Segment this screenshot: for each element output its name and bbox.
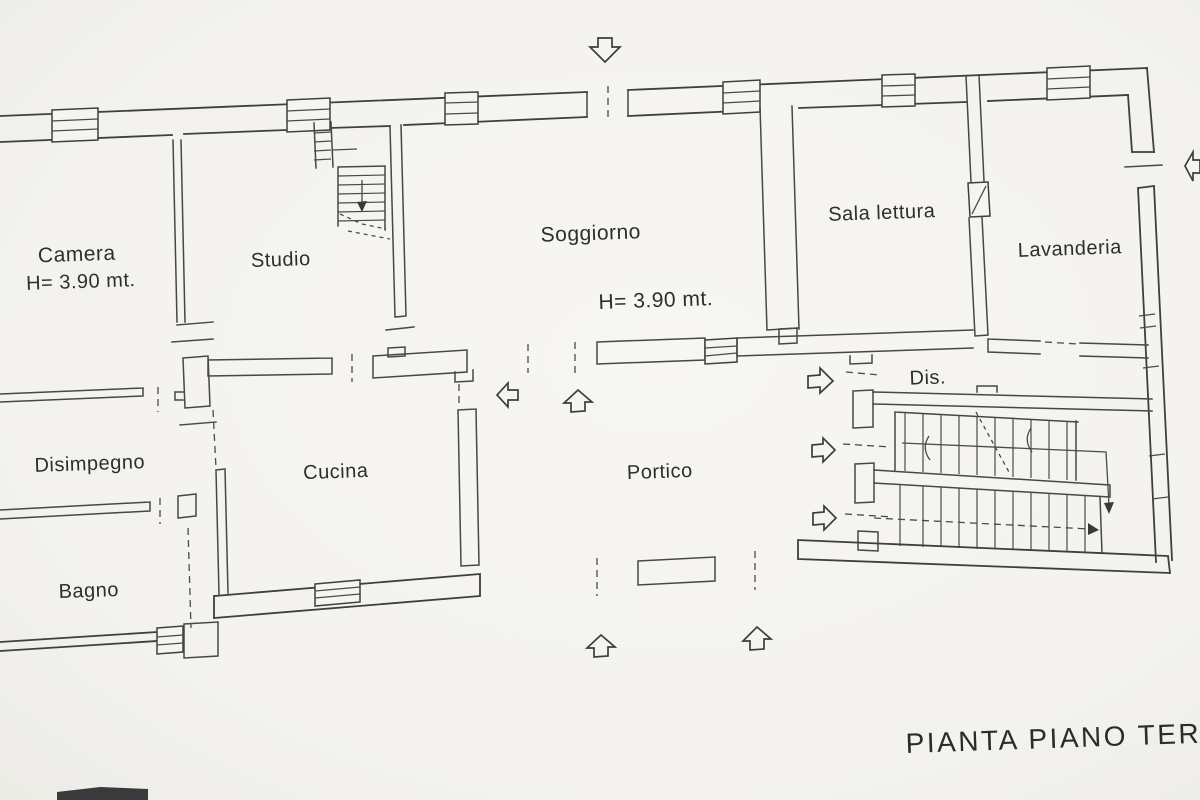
arrow-right-icon [808,368,833,393]
door-jamb [178,494,196,518]
soggiorno-south-wall [597,338,705,364]
wall-bump [977,386,997,392]
arrow-up-icon [743,627,771,650]
lower-door-dash [845,514,893,517]
wall-faces [390,125,406,317]
upper-door-dash [843,444,891,447]
window [315,580,360,606]
pillar [638,557,715,585]
arrow-right-icon [813,506,836,530]
room-label-studio: Studio [251,248,311,272]
direction-arrowhead-down [1104,502,1114,514]
portico-north-openings [528,338,737,374]
arrow-up-icon [587,635,615,657]
right-door-sill [1125,165,1162,167]
cucina-top-wall [208,347,473,382]
studio-soggiorno-wall [386,125,414,330]
studio-staircase [314,122,390,239]
arrow-right-icon [812,438,835,462]
arrow-left-icon [1185,152,1200,181]
door-dash [1045,342,1078,344]
wall-faces [173,140,213,325]
stair-bottom-wall [798,540,1170,573]
wall-faces [737,330,973,356]
room-label-sala-lettura: Sala lettura [828,200,936,226]
room-height-soggiorno: H= 3.90 mt. [598,287,713,314]
right-wall-faces [458,409,479,566]
window [882,74,915,107]
door-dash [846,372,880,375]
jamb-block [853,390,873,428]
direction-arrowhead [357,201,367,212]
camera-studio-wall [172,140,213,408]
room-label-cucina: Cucina [303,460,369,484]
room-label-lavanderia: Lavanderia [1017,236,1122,262]
door-swing-tick [386,327,414,330]
floor-plan-scan: Camera H= 3.90 mt. Studio Soggiorno H= 3… [0,0,1200,800]
bottom-left-block [858,531,878,551]
right-wall-faces [1138,186,1172,562]
lavanderia-bottom-wall [988,339,1148,358]
landing-wall [874,470,1110,497]
cucina-walls [213,384,480,618]
scan-artifact-bar [57,787,148,800]
sala-lavanderia-wall [966,75,990,336]
wall-faces [208,358,332,376]
window [52,108,98,142]
wall-faces [0,388,143,402]
bottom-wall-faces [0,632,157,651]
break-line [340,214,390,239]
door-swing-tick [180,422,216,425]
room-label-bagno: Bagno [58,579,119,603]
right-wall-window-ticks [1139,314,1168,499]
window [287,98,330,132]
window [723,80,760,114]
corner-block [183,356,210,408]
corner-outer [1147,68,1154,152]
window [445,92,478,125]
return-direction-line [874,518,1090,529]
lower-flight-right-edge [1100,497,1102,553]
wall-segment [373,350,467,378]
window [157,626,183,654]
disimpegno-bottom-wall [0,494,196,524]
direction-arrowhead-right [1088,523,1099,535]
wall-inner-face [0,95,1128,142]
wall-faces [760,106,799,330]
channel-treads [314,132,357,160]
wall-faces-lower [969,217,988,336]
portico-south-edge [597,551,755,596]
step-notch [850,355,872,364]
flight-hook-1 [925,436,930,460]
arrow-left-icon [497,383,518,407]
door-swing-tick [172,339,213,342]
room-label-dis: Dis. [909,366,946,389]
room-label-disimpegno: Disimpegno [34,451,145,477]
block-notch [175,392,183,400]
window [1047,66,1090,100]
dis-corridor [846,372,1152,428]
wall-faces [988,339,1148,358]
window [705,338,737,364]
right-exterior-wall [1125,68,1172,562]
wall-outer-face [0,68,1147,116]
main-staircase [798,412,1170,573]
arrow-down-icon [590,38,620,62]
lower-flight-treads [900,485,1085,553]
top-exterior-wall [0,66,1147,142]
room-height-camera: H= 3.90 mt. [26,269,136,295]
right-wall-dashed [188,528,191,628]
arrow-up-icon [564,390,592,412]
wall-faces [0,502,150,519]
break-line [976,412,1010,474]
soggiorno-sala-wall [760,106,799,344]
door-dash [213,410,216,468]
entrance-arrows [497,38,1200,657]
plan-title: PIANTA PIANO TERRA [905,716,1200,759]
stair-top-wall [873,392,1152,411]
room-label-soggiorno: Soggiorno [540,220,641,246]
corner-block [184,622,218,658]
room-label-portico: Portico [627,460,693,484]
landing-left-block [855,463,874,503]
left-wall-faces [216,469,228,594]
wall-faces-upper [966,75,984,182]
room-label-camera: Camera [38,242,116,268]
sala-bottom-wall [737,330,973,364]
